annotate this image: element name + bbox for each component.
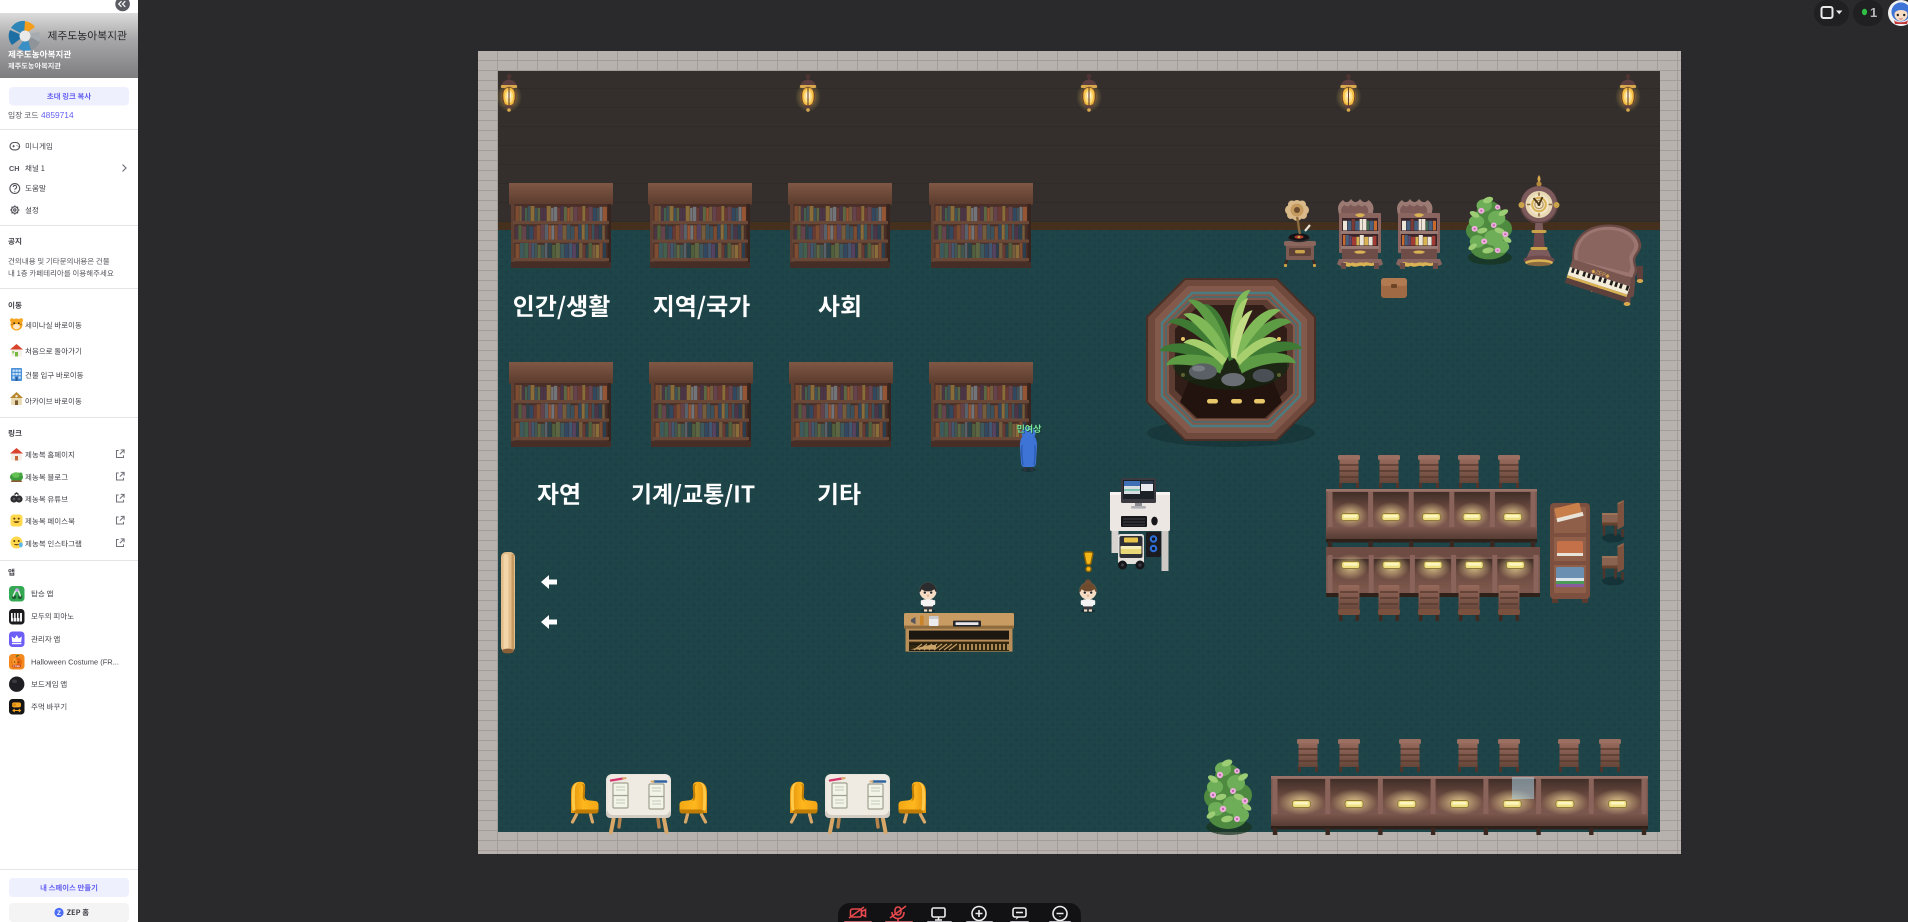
svg-text:CH: CH — [9, 164, 19, 173]
svg-text:Z: Z — [57, 910, 61, 917]
svg-text:1: 1 — [1870, 5, 1877, 20]
svg-text:FREE: FREE — [13, 664, 20, 668]
svg-text:Halloween Costume (FR...: Halloween Costume (FR... — [31, 658, 119, 667]
svg-text:4859714: 4859714 — [41, 110, 74, 120]
